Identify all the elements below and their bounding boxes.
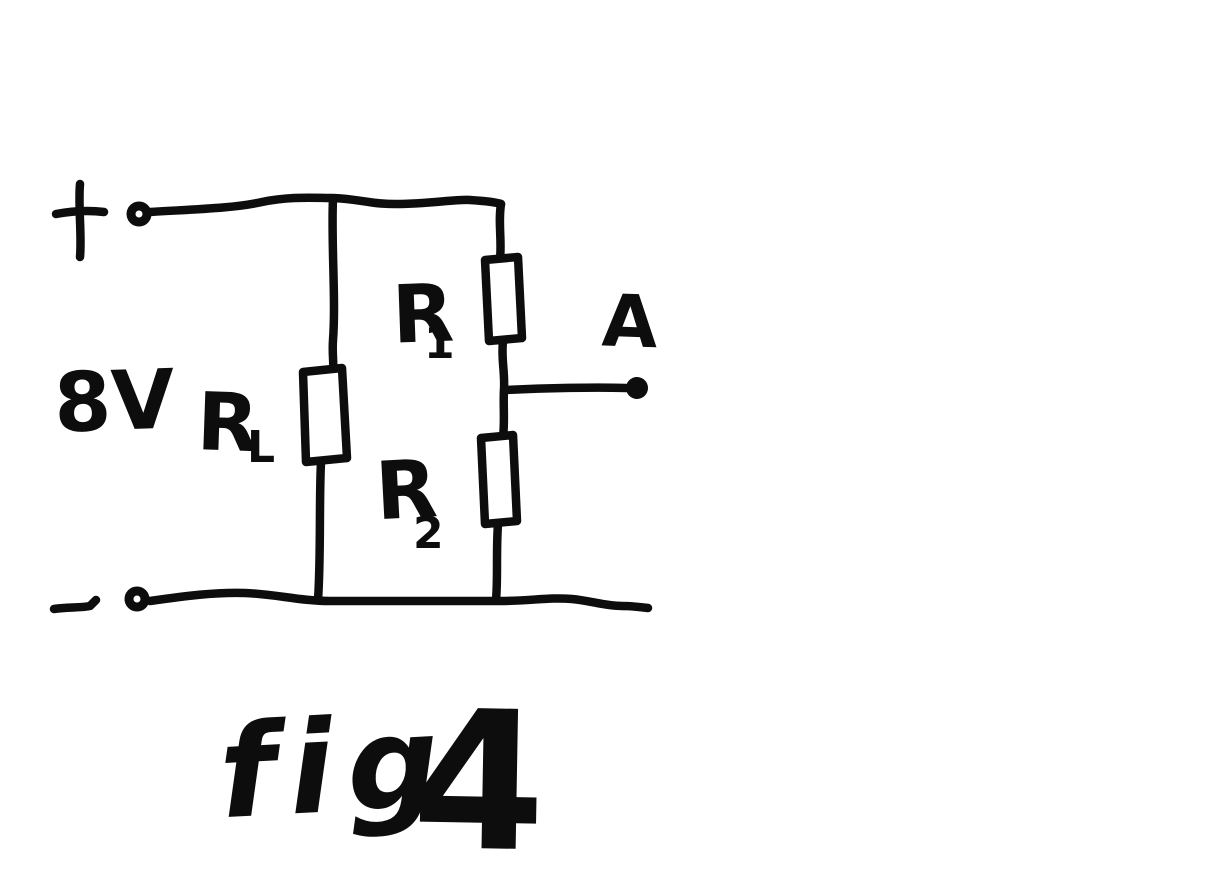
top-rail-wire: [150, 198, 501, 212]
output-tap-wire: [506, 388, 626, 390]
r2-resistor-body: [481, 435, 517, 524]
source-voltage-label: 8V: [52, 352, 176, 451]
output-terminal-label: A: [601, 278, 660, 364]
plus-sign-icon: [56, 184, 104, 257]
circuit-diagram-canvas: 8V R L R 1 R 2 A fig 4: [0, 0, 1230, 894]
positive-terminal-node: [131, 206, 147, 222]
rl-bottom-wire: [318, 462, 321, 600]
rl-resistor-body: [303, 368, 347, 462]
rl-resistor-subscript: L: [247, 422, 275, 473]
bottom-rail-wire: [150, 593, 648, 608]
circuit-figure: 8V R L R 1 R 2 A fig 4: [0, 0, 1230, 894]
figure-caption-number: 4: [410, 670, 547, 894]
rl-top-wire: [333, 199, 334, 371]
output-terminal-dot: [626, 377, 648, 399]
r2-resistor-subscript: 2: [413, 508, 444, 559]
r1-top-wire: [500, 204, 501, 259]
r2-bottom-wire: [496, 524, 498, 600]
r1-resistor-subscript: 1: [424, 318, 455, 369]
r1-resistor-body: [485, 257, 522, 341]
minus-sign-icon: [54, 600, 96, 609]
negative-terminal-node: [129, 591, 145, 607]
